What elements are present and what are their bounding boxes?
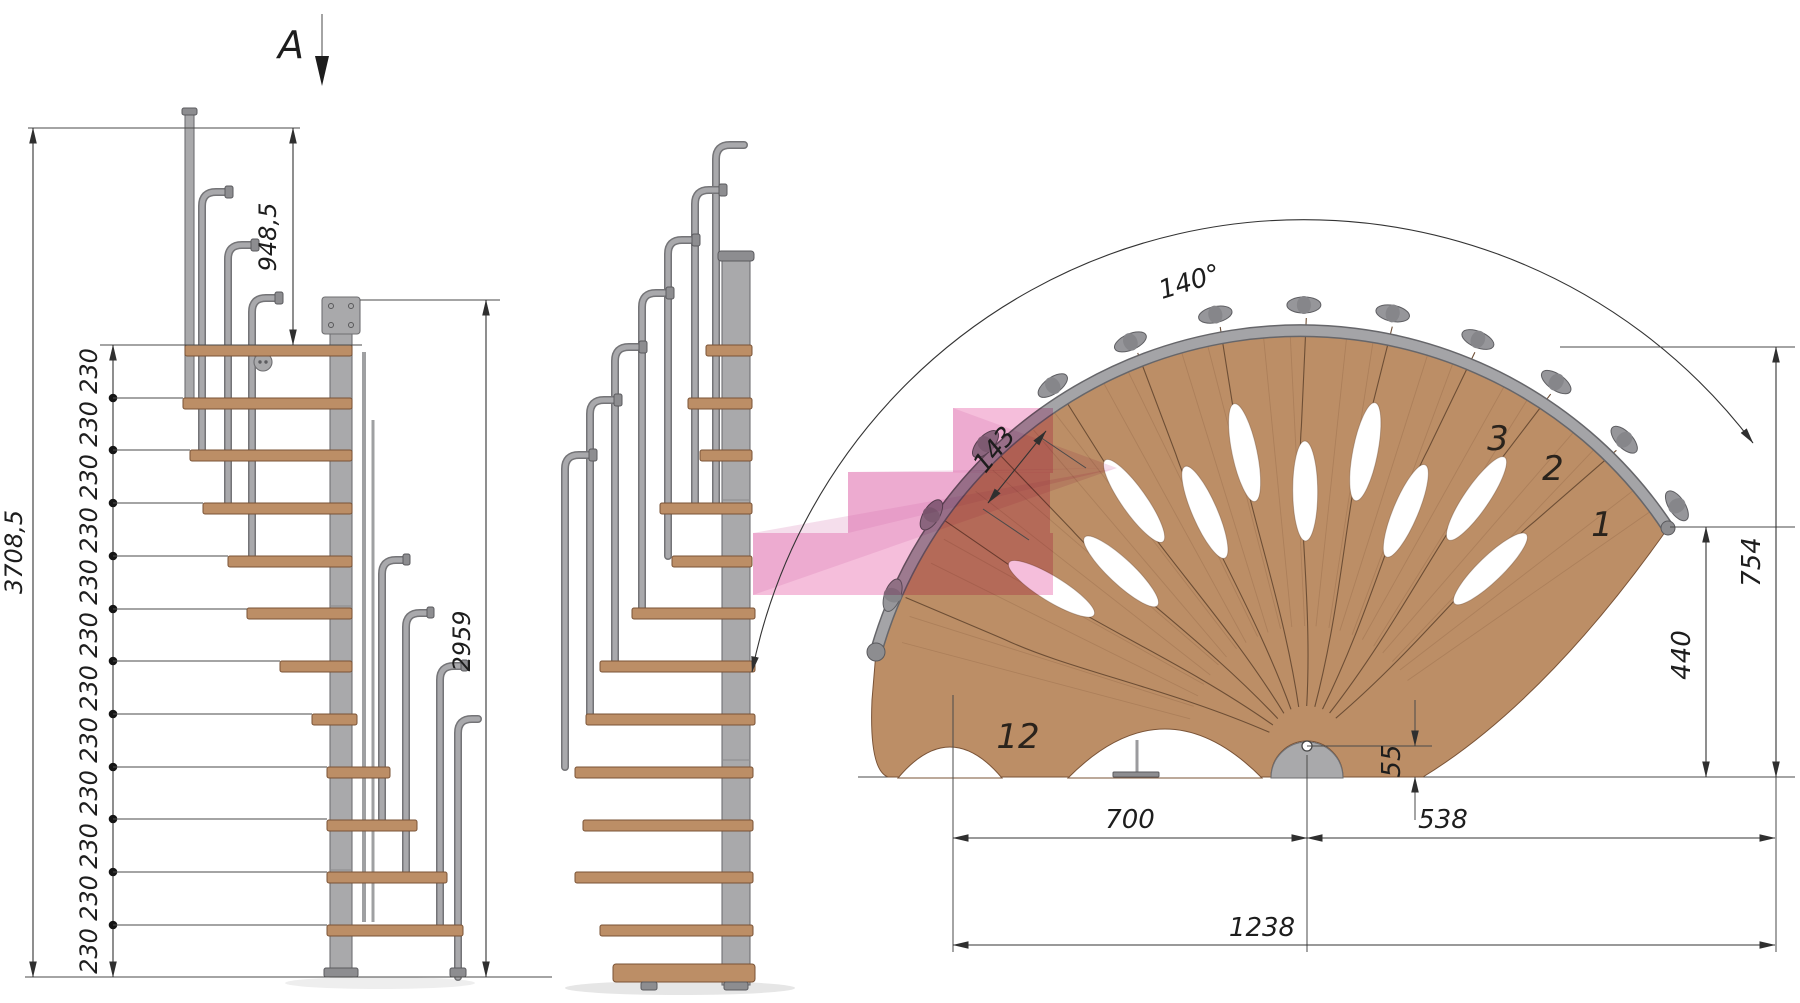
pole-foot <box>324 968 358 977</box>
svg-text:230: 230 <box>75 770 103 816</box>
rim-connector-icon <box>1111 327 1149 357</box>
svg-text:230: 230 <box>75 559 103 605</box>
dim-outer-radius: 754 <box>1737 537 1767 587</box>
baluster-foot <box>450 968 466 977</box>
pole-foot <box>724 982 748 990</box>
rim-connector-icon <box>1374 301 1411 325</box>
tread-cutout <box>1292 441 1318 541</box>
rim-connector-icon <box>1537 365 1575 399</box>
dim-total-width: 1238 <box>1229 913 1295 943</box>
dim-left-width: 700 <box>1105 805 1155 835</box>
section-cut-arrow-icon <box>315 56 329 86</box>
dim-pole-offset: 55 <box>1377 744 1407 777</box>
rim-connector-icon <box>1459 325 1497 355</box>
floor-shadow <box>285 977 475 989</box>
left-elevation-view <box>182 108 478 989</box>
staircase-drawing: A <box>0 0 1800 1003</box>
step-number-12: 12 <box>996 717 1039 757</box>
step-number-2: 2 <box>1542 449 1564 489</box>
newel-cap <box>182 108 197 115</box>
drawing-canvas: A <box>0 0 1800 1003</box>
rim-end-cap <box>1661 521 1675 535</box>
rim-end-cap <box>867 643 885 661</box>
dim-right-width: 538 <box>1418 805 1468 835</box>
step-number-3: 3 <box>1487 419 1509 459</box>
riser-labels: 230 230 230 230 230 230 230 230 230 230 … <box>75 348 103 974</box>
tread-foot <box>641 982 657 990</box>
svg-text:230: 230 <box>75 717 103 763</box>
rim-connector-icon <box>1197 302 1234 327</box>
svg-text:230: 230 <box>75 665 103 711</box>
elevation-dimensions: 3708,5 948,5 2959 <box>0 128 552 977</box>
top-mount-plate <box>322 297 360 334</box>
bottom-tread <box>613 964 755 982</box>
step-number-1: 1 <box>1591 505 1613 545</box>
floor-shadow <box>565 981 795 995</box>
pole-cap <box>718 251 754 261</box>
svg-text:230: 230 <box>75 401 103 447</box>
svg-text:230: 230 <box>75 823 103 869</box>
svg-text:230: 230 <box>75 928 103 974</box>
rim-connector-icon <box>1287 296 1321 314</box>
dim-tread-depth: 440 <box>1667 630 1697 680</box>
section-label: A <box>275 23 304 67</box>
svg-text:230: 230 <box>75 348 103 394</box>
svg-text:230: 230 <box>75 507 103 553</box>
section-marker: A <box>275 14 329 86</box>
upper-railing <box>182 108 283 556</box>
svg-text:230: 230 <box>75 875 103 921</box>
dim-rotation-angle: 140° <box>1155 259 1224 306</box>
dim-top-run: 948,5 <box>254 203 282 272</box>
dim-pole-height: 2959 <box>448 610 476 671</box>
svg-text:230: 230 <box>75 612 103 658</box>
dim-overall-height: 3708,5 <box>0 510 28 594</box>
svg-text:230: 230 <box>75 454 103 500</box>
step-support-base <box>1113 772 1159 777</box>
